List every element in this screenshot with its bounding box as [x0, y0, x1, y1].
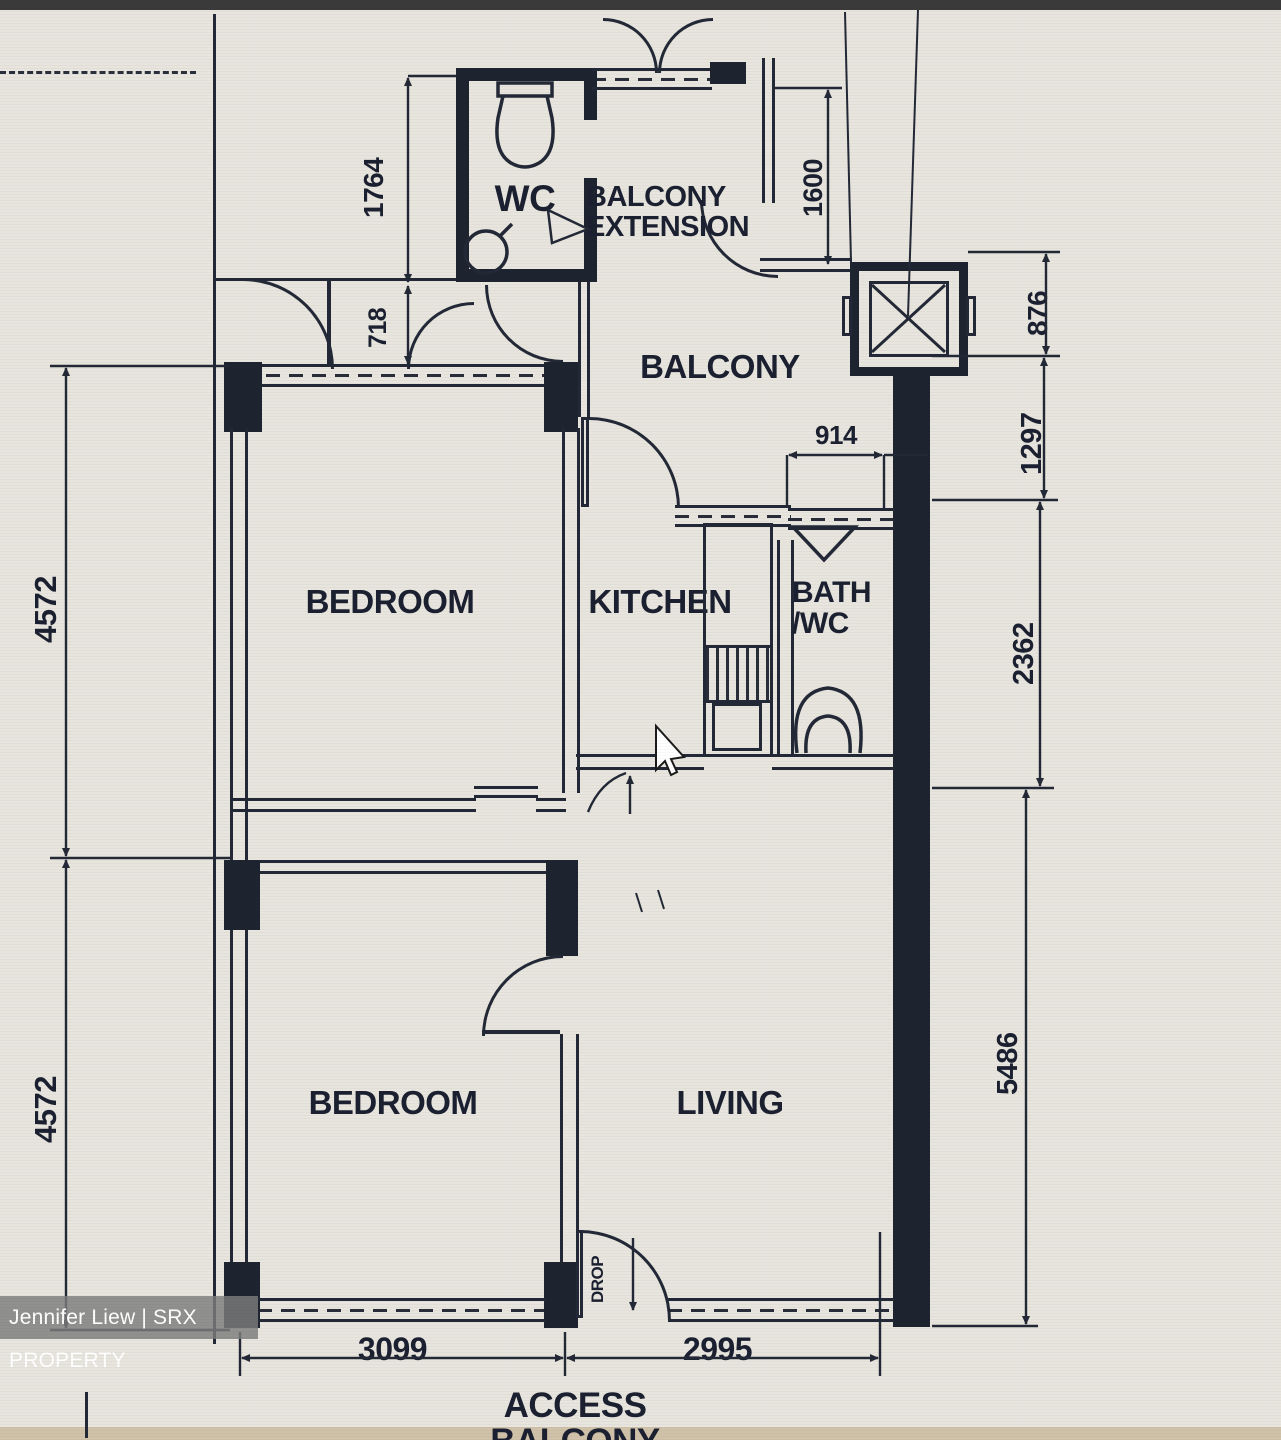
wc-wall-left — [456, 68, 469, 282]
toilet-icon — [497, 83, 553, 167]
dim-left-top: 4572 — [28, 552, 64, 668]
drop-label: DROP — [588, 1240, 608, 1318]
balcony-extension-wall-stub — [710, 62, 746, 84]
room-label-bedroom-top: BEDROOM — [300, 585, 480, 619]
bedroom-top-door-notch — [474, 786, 538, 798]
bedroom-bottom-window — [258, 1298, 546, 1322]
stray-marks — [636, 890, 664, 912]
balcony-ext-double-door-arc-right — [658, 18, 713, 73]
dim-bath-width: 914 — [790, 420, 882, 451]
screen-top-bar — [0, 0, 1281, 10]
dim-bottom-living: 2995 — [650, 1331, 785, 1368]
bedroom-bottom-door-arc — [482, 955, 563, 1036]
dim-left-bottom: 4572 — [28, 1052, 64, 1168]
bedroom-balcony-door-leaf — [327, 280, 331, 366]
wc-wall-top — [456, 68, 597, 81]
wall-bedroom-kitchen — [562, 428, 580, 793]
column-mid-right — [546, 860, 578, 956]
living-window — [668, 1298, 894, 1322]
bath-wall-bottom — [772, 754, 894, 770]
wall-between-bedrooms — [230, 860, 548, 874]
room-label-balcony-extension: BALCONY EXTENSION — [586, 183, 778, 242]
bedroom-top-wall-bottom-b — [536, 798, 566, 812]
shaft-tab-left — [842, 296, 852, 336]
dim-wc-height: 1764 — [358, 138, 390, 238]
bedroom-balcony-door-arc-left — [243, 278, 334, 369]
kitchen-door-leaf — [581, 417, 589, 507]
shaft-inner-square — [869, 281, 949, 357]
dim-right-balcony: 1297 — [1016, 394, 1049, 494]
party-wall-right — [893, 374, 930, 1327]
room-label-wc: WC — [480, 180, 570, 218]
wall-wc-to-kitchen — [578, 282, 590, 417]
bath-wall-left — [777, 540, 794, 755]
dim-right-chute: 876 — [1022, 272, 1054, 354]
balcony-ext-double-door-arc-left — [603, 18, 658, 73]
service-duct-box — [712, 703, 762, 751]
kitchen-door-arc — [589, 417, 680, 508]
frame-line-bottom-left — [85, 1392, 88, 1438]
bedroom-balcony-door-arc-right — [407, 302, 474, 369]
bath-toilet-icon — [796, 688, 861, 753]
frame-line-left — [213, 14, 216, 1344]
dim-door-offset: 718 — [364, 294, 393, 362]
shaft-tab-right — [966, 296, 976, 336]
wall-left-outer — [230, 428, 248, 1268]
bedroom-top-wall-bottom-a — [230, 798, 476, 812]
floor-plan-page: WC BALCONY EXTENSION BALCONY BEDROOM KIT… — [0, 0, 1281, 1440]
watermark: Jennifer Liew | SRX PROPERTY — [0, 1296, 258, 1339]
dim-bottom-bedroom: 3099 — [325, 1331, 460, 1368]
bedroom-bottom-door-leaf — [482, 1030, 560, 1034]
wc-door-arc — [485, 285, 563, 363]
frame-dashed-line — [0, 71, 196, 74]
room-label-living: LIVING — [665, 1086, 795, 1120]
bath-wall-top — [788, 508, 895, 530]
dim-balcony-ext: 1600 — [798, 140, 829, 235]
room-label-balcony: BALCONY — [630, 350, 810, 384]
balcony-extension-wall-bottom — [760, 258, 852, 272]
sink-icon — [465, 224, 512, 273]
column-mid-left — [224, 860, 260, 930]
column-bottom-mid — [544, 1262, 578, 1328]
wc-wall-bottom — [456, 269, 597, 282]
bath-sink-icon — [793, 527, 855, 560]
room-label-bath: BATH /WC — [792, 578, 892, 639]
kitchen-wall-bottom — [576, 754, 704, 770]
column-bedroom-top-left — [224, 362, 262, 432]
room-label-bedroom-bottom: BEDROOM — [303, 1086, 483, 1120]
kitchen-entry-arrow — [588, 773, 630, 814]
dim-right-living: 5486 — [992, 1010, 1025, 1118]
service-duct-hatch — [706, 645, 770, 703]
access-balcony-label: ACCESS BALCONY — [425, 1388, 725, 1440]
balcony-extension-wall-right — [762, 58, 775, 203]
main-door-leaf — [576, 1230, 583, 1318]
column-bedroom-top-right — [544, 362, 578, 432]
dim-right-kitchen: 2362 — [1008, 602, 1041, 706]
